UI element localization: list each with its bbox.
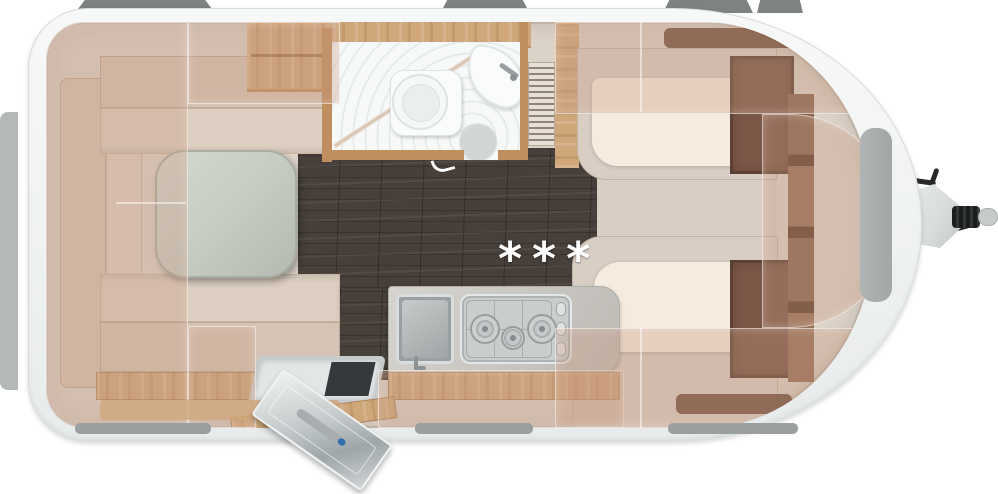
locker-divider-2	[640, 328, 642, 428]
hitch-coupling-tip	[978, 208, 998, 226]
hob-knob-1	[556, 302, 566, 316]
entry-step-well	[324, 362, 375, 396]
hob-burner-middle	[501, 326, 525, 350]
bottom-window-3	[668, 423, 798, 434]
service-hatch	[860, 128, 892, 302]
top-window-4	[757, 0, 803, 13]
hob-burner-right	[527, 314, 557, 344]
overhead-lockers-front	[762, 114, 872, 328]
bottom-window-2	[415, 423, 533, 434]
overhead-lockers-top-left	[188, 22, 340, 104]
rear-window	[0, 112, 18, 390]
sink-basin	[402, 300, 448, 358]
hob-burner-left	[470, 314, 500, 344]
bathroom-wall-right	[520, 22, 528, 160]
locker-divider-3	[116, 202, 186, 204]
overhead-lockers-rear	[46, 22, 188, 428]
equipment-marker: ***	[498, 236, 648, 282]
locker-divider-1	[640, 22, 642, 112]
locker-shelf-top	[664, 28, 798, 48]
heater-vent	[528, 62, 555, 146]
caravan-floorplan: ***	[0, 0, 998, 494]
toilet-bowl-inner	[402, 84, 440, 122]
hitch-coupling	[952, 206, 980, 228]
between-beds-floor	[597, 172, 777, 238]
bottom-window-1	[75, 423, 211, 434]
basin-drain	[510, 74, 517, 81]
handbrake-grip	[929, 168, 939, 185]
locker-shelf-bottom	[676, 394, 792, 414]
interior-layout: ***	[46, 22, 872, 428]
